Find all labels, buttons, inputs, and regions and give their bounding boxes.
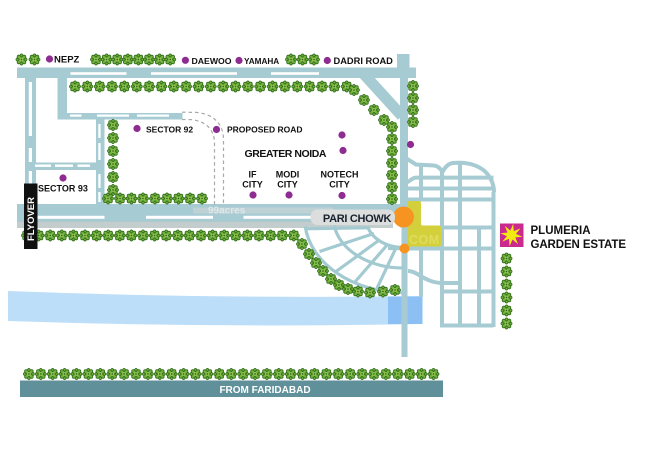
svg-text:DADRI ROAD: DADRI ROAD xyxy=(334,56,394,66)
svg-text:FLYOVER: FLYOVER xyxy=(26,197,37,241)
svg-text:COM: COM xyxy=(409,233,440,247)
svg-text:CITY: CITY xyxy=(242,180,263,190)
svg-text:FROM FARIDABAD: FROM FARIDABAD xyxy=(219,385,310,396)
svg-text:IF: IF xyxy=(249,170,258,180)
svg-text:NEPZ: NEPZ xyxy=(54,55,80,66)
svg-text:SECTOR 92: SECTOR 92 xyxy=(146,125,193,135)
svg-text:PROPOSED ROAD: PROPOSED ROAD xyxy=(227,125,303,135)
svg-text:CITY: CITY xyxy=(277,180,298,190)
svg-text:YAMAHA: YAMAHA xyxy=(244,57,279,66)
svg-text:PARI CHOWK: PARI CHOWK xyxy=(323,213,392,225)
svg-text:GARDEN ESTATE: GARDEN ESTATE xyxy=(531,239,627,251)
svg-text:DAEWOO: DAEWOO xyxy=(192,56,232,66)
svg-text:NOTECH: NOTECH xyxy=(321,170,359,180)
svg-text:GREATER NOIDA: GREATER NOIDA xyxy=(245,148,327,160)
svg-text:MODI: MODI xyxy=(276,170,300,180)
svg-text:SECTOR 93: SECTOR 93 xyxy=(38,184,88,194)
svg-text:PLUMERIA: PLUMERIA xyxy=(531,225,591,237)
svg-text:CITY: CITY xyxy=(329,180,350,190)
svg-text:99acres: 99acres xyxy=(208,206,246,217)
